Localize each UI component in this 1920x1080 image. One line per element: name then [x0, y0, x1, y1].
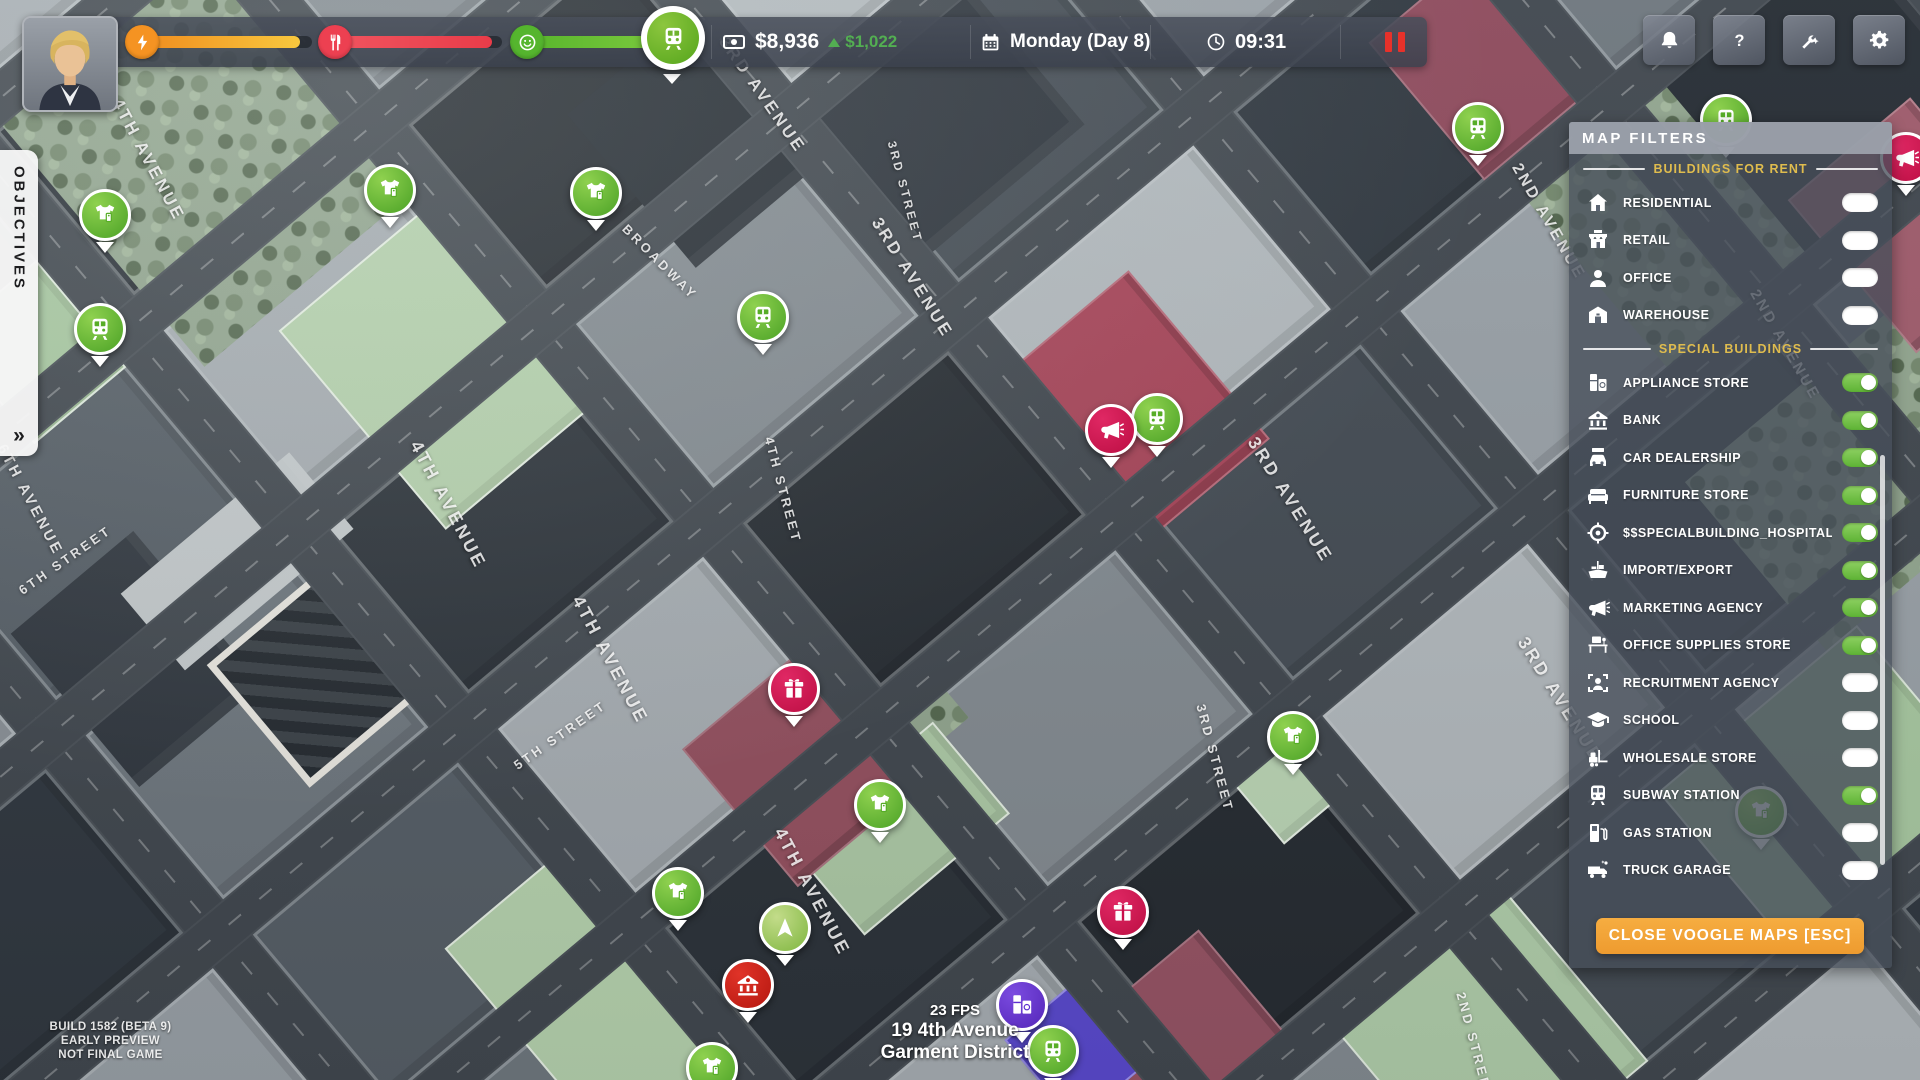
objectives-tab[interactable]: OBJECTIVES »	[0, 150, 38, 456]
filter-row-car-dealership: CAR DEALERSHIP	[1583, 439, 1878, 477]
location-district: Garment District	[805, 1042, 1105, 1064]
toggle-retail[interactable]	[1842, 231, 1878, 250]
gift-icon	[1110, 899, 1136, 925]
filter-label: WHOLESALE STORE	[1623, 751, 1832, 765]
gaspump-icon	[1583, 821, 1613, 845]
map-marker-clothing-store[interactable]	[1267, 711, 1319, 763]
clothing-icon	[1280, 724, 1306, 750]
filter-label: RETAIL	[1623, 233, 1832, 247]
car-icon	[1583, 446, 1613, 470]
game-screen: 4TH AVENUE3RD AVENUE3RD AVENUE3RD STREET…	[0, 0, 1920, 1080]
clothing-icon	[583, 180, 609, 206]
recruit-icon	[1583, 671, 1613, 695]
fps-counter: 23 FPS	[805, 1002, 1105, 1020]
toggle-marketing-agency[interactable]	[1842, 598, 1878, 617]
tools-icon	[1798, 29, 1821, 52]
clock-icon	[1206, 32, 1226, 52]
warehouse-icon	[1583, 303, 1613, 327]
filter-label: RESIDENTIAL	[1623, 196, 1832, 210]
vehicle-pointer-triangle	[663, 74, 681, 84]
location-address: 19 4th Avenue	[805, 1020, 1105, 1042]
retail-icon	[1583, 228, 1613, 252]
bell-icon	[1658, 29, 1681, 52]
money-delta: $1,022	[828, 32, 897, 52]
notifications-button[interactable]	[1643, 15, 1695, 65]
food-icon	[318, 25, 352, 59]
filter-row-specialbuilding-hospital: $$SPECIALBUILDING_HOSPITAL	[1583, 514, 1878, 552]
map-marker-clothing-store[interactable]	[570, 167, 622, 219]
truck-icon	[1583, 858, 1613, 882]
repair-tools-button[interactable]	[1783, 15, 1835, 65]
filter-section-header: SPECIAL BUILDINGS	[1583, 334, 1878, 364]
filter-row-warehouse: WAREHOUSE	[1583, 297, 1878, 335]
filter-label: WAREHOUSE	[1623, 308, 1832, 322]
desk-icon	[1583, 633, 1613, 657]
map-marker-bank[interactable]	[722, 959, 774, 1011]
toggle-wholesale-store[interactable]	[1842, 748, 1878, 767]
cash-icon	[722, 30, 746, 54]
filter-row-bank: BANK	[1583, 402, 1878, 440]
toggle-bank[interactable]	[1842, 411, 1878, 430]
megaphone-icon	[1583, 596, 1613, 620]
divider-line	[1583, 348, 1651, 350]
filter-section-label: SPECIAL BUILDINGS	[1659, 342, 1802, 356]
filter-section-header: BUILDINGS FOR RENT	[1583, 154, 1878, 184]
pause-button[interactable]	[1365, 27, 1425, 57]
filters-scrollbar[interactable]	[1880, 455, 1885, 865]
pause-icon	[1398, 32, 1405, 52]
divider-line	[1583, 168, 1645, 170]
filter-row-appliance-store: APPLIANCE STORE	[1583, 364, 1878, 402]
filter-section-label: BUILDINGS FOR RENT	[1653, 162, 1807, 176]
filter-row-recruitment-agency: RECRUITMENT AGENCY	[1583, 664, 1878, 702]
toggle-office[interactable]	[1842, 268, 1878, 287]
filter-label: OFFICE	[1623, 271, 1832, 285]
current-location-info: 23 FPS 19 4th Avenue Garment District	[805, 1002, 1105, 1064]
arrow-icon	[772, 915, 798, 941]
map-marker-gift-shop[interactable]	[1097, 886, 1149, 938]
filter-label: TRUCK GARAGE	[1623, 863, 1832, 877]
toggle-import-export[interactable]	[1842, 561, 1878, 580]
question-icon: ?	[1728, 29, 1751, 52]
filter-row-truck-garage: TRUCK GARAGE	[1583, 852, 1878, 890]
toggle-warehouse[interactable]	[1842, 306, 1878, 325]
toggle-specialbuilding-hospital[interactable]	[1842, 523, 1878, 542]
filter-label: SUBWAY STATION	[1623, 788, 1832, 802]
toggle-residential[interactable]	[1842, 193, 1878, 212]
pause-icon	[1385, 32, 1392, 52]
filter-row-wholesale-store: WHOLESALE STORE	[1583, 739, 1878, 777]
filter-row-marketing-agency: MARKETING AGENCY	[1583, 589, 1878, 627]
time-display[interactable]: 09:31	[1206, 17, 1286, 67]
megaphone-icon	[1893, 145, 1919, 171]
toggle-subway-station[interactable]	[1842, 786, 1878, 805]
sofa-icon	[1583, 483, 1613, 507]
up-arrow-icon	[828, 38, 840, 47]
gift-icon	[781, 676, 807, 702]
filter-label: MARKETING AGENCY	[1623, 601, 1832, 615]
filter-label: CAR DEALERSHIP	[1623, 451, 1832, 465]
current-vehicle-button[interactable]	[641, 6, 705, 70]
build-info-line: BUILD 1582 (BETA 9)	[18, 1020, 203, 1034]
toggle-truck-garage[interactable]	[1842, 861, 1878, 880]
toggle-furniture-store[interactable]	[1842, 486, 1878, 505]
map-marker-clothing-store[interactable]	[854, 779, 906, 831]
hud-top-bar: $8,936 $1,022 Monday (Day 8) 09:31	[30, 17, 1427, 67]
clothing-icon	[699, 1055, 725, 1080]
megaphone-icon	[1098, 417, 1124, 443]
toggle-appliance-store[interactable]	[1842, 373, 1878, 392]
forklift-icon	[1583, 746, 1613, 770]
map-marker-marketing-agency[interactable]	[1085, 404, 1137, 456]
clothing-icon	[377, 177, 403, 203]
map-marker-subway-station[interactable]	[1452, 102, 1504, 154]
bank-icon	[735, 972, 761, 998]
bolt-icon	[125, 25, 159, 59]
clothing-icon	[665, 880, 691, 906]
clothing-icon	[867, 792, 893, 818]
money-value: $8,936	[755, 30, 819, 54]
time-value: 09:31	[1235, 31, 1286, 54]
energy-bar-fill	[142, 36, 300, 48]
person-icon	[1583, 266, 1613, 290]
energy-bar	[142, 36, 312, 48]
date-value: Monday (Day 8)	[1010, 31, 1150, 53]
clothing-icon	[92, 202, 118, 228]
toggle-office-supplies-store[interactable]	[1842, 636, 1878, 655]
map-marker-clothing-store[interactable]	[79, 189, 131, 241]
map-marker-clothing-store[interactable]	[652, 867, 704, 919]
smiley-icon	[510, 25, 544, 59]
close-voogle-maps-button[interactable]: CLOSE VOOGLE MAPS [ESC]	[1596, 918, 1864, 954]
filter-row-school: SCHOOL	[1583, 702, 1878, 740]
player-avatar[interactable]	[22, 16, 118, 112]
filter-label: GAS STATION	[1623, 826, 1832, 840]
gear-icon	[1868, 29, 1891, 52]
filter-label: SCHOOL	[1623, 713, 1832, 727]
money-display[interactable]: $8,936 $1,022	[722, 17, 897, 67]
divider-line	[1810, 348, 1878, 350]
hud-divider	[1340, 25, 1341, 59]
map-marker-subway-station[interactable]	[1131, 393, 1183, 445]
train-icon	[87, 316, 113, 342]
toggle-recruitment-agency[interactable]	[1842, 673, 1878, 692]
train-icon	[750, 304, 776, 330]
map-marker-clothing-store[interactable]	[364, 164, 416, 216]
map-marker-subway-station[interactable]	[737, 291, 789, 343]
hud-divider	[711, 25, 712, 59]
filter-label: FURNITURE STORE	[1623, 488, 1832, 502]
map-marker-subway-station[interactable]	[74, 303, 126, 355]
filter-row-furniture-store: FURNITURE STORE	[1583, 477, 1878, 515]
build-info-line: NOT FINAL GAME	[18, 1048, 203, 1062]
filter-label: BANK	[1623, 413, 1832, 427]
map-marker-player-position[interactable]	[759, 902, 811, 954]
filter-row-office-supplies-store: OFFICE SUPPLIES STORE	[1583, 627, 1878, 665]
expand-chevrons-icon[interactable]: »	[13, 425, 25, 446]
map-marker-gift-shop[interactable]	[768, 663, 820, 715]
calendar-icon	[980, 32, 1001, 53]
filter-row-gas-station: GAS STATION	[1583, 814, 1878, 852]
hud-divider	[970, 25, 971, 59]
ship-icon	[1583, 558, 1613, 582]
train-icon	[1144, 406, 1170, 432]
money-delta-value: $1,022	[845, 32, 897, 52]
map-filters-title: MAP FILTERS	[1569, 122, 1892, 154]
filter-row-retail: RETAIL	[1583, 222, 1878, 260]
map-filters-panel: MAP FILTERS BUILDINGS FOR RENTRESIDENTIA…	[1569, 122, 1892, 968]
settings-button[interactable]	[1853, 15, 1905, 65]
objectives-label: OBJECTIVES	[11, 166, 28, 291]
filter-row-import-export: IMPORT/EXPORT	[1583, 552, 1878, 590]
build-info: BUILD 1582 (BETA 9) EARLY PREVIEW NOT FI…	[18, 1020, 203, 1062]
filter-row-subway-station: SUBWAY STATION	[1583, 777, 1878, 815]
filter-label: OFFICE SUPPLIES STORE	[1623, 638, 1832, 652]
toggle-gas-station[interactable]	[1842, 823, 1878, 842]
toggle-car-dealership[interactable]	[1842, 448, 1878, 467]
filter-row-office: OFFICE	[1583, 259, 1878, 297]
filter-label: $$SPECIALBUILDING_HOSPITAL	[1623, 526, 1832, 540]
date-display[interactable]: Monday (Day 8)	[980, 17, 1150, 67]
help-button[interactable]: ?	[1713, 15, 1765, 65]
bank-icon	[1583, 408, 1613, 432]
svg-text:?: ?	[1734, 31, 1744, 49]
train-icon	[1583, 783, 1613, 807]
build-info-line: EARLY PREVIEW	[18, 1034, 203, 1048]
toggle-school[interactable]	[1842, 711, 1878, 730]
filter-row-residential: RESIDENTIAL	[1583, 184, 1878, 222]
divider-line	[1816, 168, 1878, 170]
appliance-icon	[1583, 371, 1613, 395]
house-icon	[1583, 191, 1613, 215]
filter-label: RECRUITMENT AGENCY	[1623, 676, 1832, 690]
filter-label: APPLIANCE STORE	[1623, 376, 1832, 390]
hunger-bar	[335, 36, 502, 48]
train-icon	[660, 25, 687, 52]
train-icon	[1465, 115, 1491, 141]
target-icon	[1583, 521, 1613, 545]
filter-label: IMPORT/EXPORT	[1623, 563, 1832, 577]
hunger-bar-fill	[335, 36, 492, 48]
gradcap-icon	[1583, 708, 1613, 732]
